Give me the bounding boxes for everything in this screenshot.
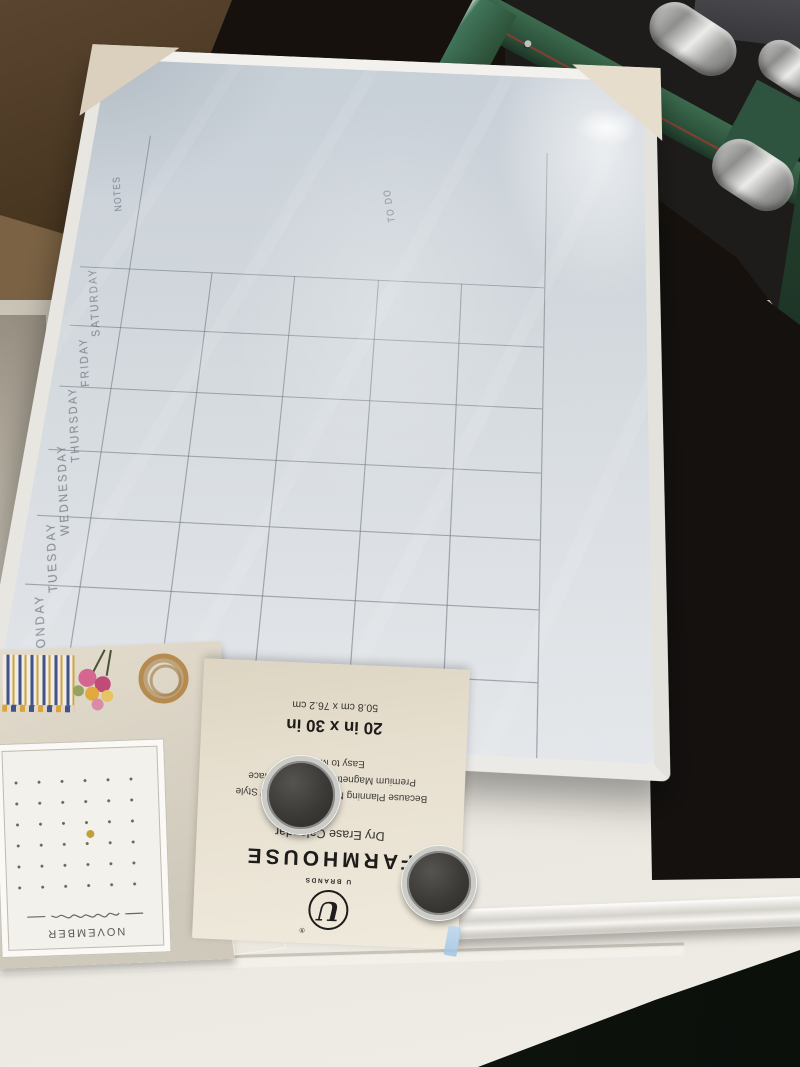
day-header-wednesday: WEDNESDAY [55,443,73,537]
warehouse-product-photo: NOTES TO DO SATURDAY FRIDAY THURSDAY WED… [0,0,800,1067]
grid-line [70,325,543,348]
brand-name: U BRANDS [304,876,351,885]
handwritten-script-line [25,906,145,924]
flower-stem [106,650,112,676]
registered-trademark-icon: ® [299,926,304,933]
grid-line [25,584,539,611]
wall-basket [137,652,189,704]
day-header-thursday: THURSDAY [66,386,83,464]
day-header-saturday: SATURDAY [86,267,103,337]
u-brands-logo: U ® [303,887,349,933]
product-title: FARMHOUSE [243,842,414,873]
flower-leaf [73,685,84,696]
tassel-garland [2,655,74,706]
flower-stem [92,649,106,673]
mini-calendar-dot-grid [12,770,152,905]
day-header-friday: FRIDAY [77,336,93,387]
grid-line [80,266,544,288]
grid-line [37,515,540,541]
grid-line [536,153,548,758]
flower [91,698,104,711]
mini-calendar-month: NOVEMBER [46,925,125,940]
size-centimeters: 50.8 cm x 76.2 cm [292,698,378,714]
todo-section-label: TO DO [381,188,398,223]
u-brands-logo-icon: U [308,889,350,931]
notes-section-label: NOTES [111,175,125,212]
flower [101,690,114,703]
grid-line [59,386,542,410]
grid-line [48,449,541,474]
grid-line [57,136,151,733]
round-magnet [262,756,340,834]
day-header-tuesday: TUESDAY [44,521,61,594]
round-magnet [402,846,476,920]
plastic-glare [576,107,638,148]
mini-calendar-photo: NOVEMBER [0,738,172,958]
size-inches: 20 in x 30 in [286,714,383,738]
mini-calendar-flipped-content: NOVEMBER [3,748,162,949]
